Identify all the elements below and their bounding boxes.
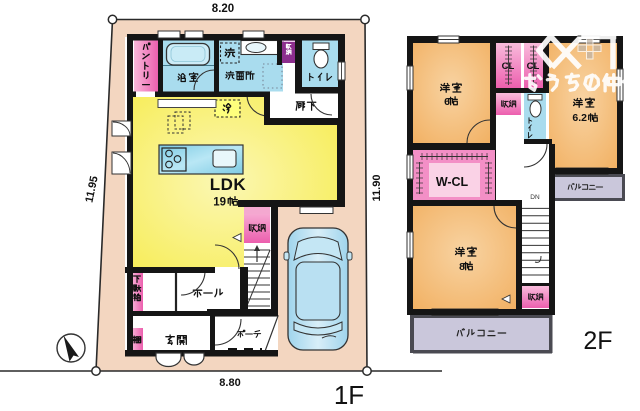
- svg-text:DN: DN: [530, 194, 540, 201]
- svg-text:6.2: 6.2: [572, 112, 587, 124]
- svg-text:LDK: LDK: [210, 175, 247, 194]
- svg-text:8.20: 8.20: [212, 3, 234, 15]
- svg-text:2F: 2F: [583, 327, 612, 355]
- svg-text:6: 6: [444, 96, 450, 108]
- svg-text:1F: 1F: [334, 380, 364, 410]
- svg-text:W-CL: W-CL: [436, 175, 469, 189]
- svg-text:8: 8: [459, 261, 465, 273]
- svg-text:19: 19: [213, 197, 226, 209]
- svg-text:8.80: 8.80: [219, 377, 240, 389]
- svg-text:11.90: 11.90: [371, 175, 383, 202]
- svg-text:CL: CL: [527, 61, 540, 72]
